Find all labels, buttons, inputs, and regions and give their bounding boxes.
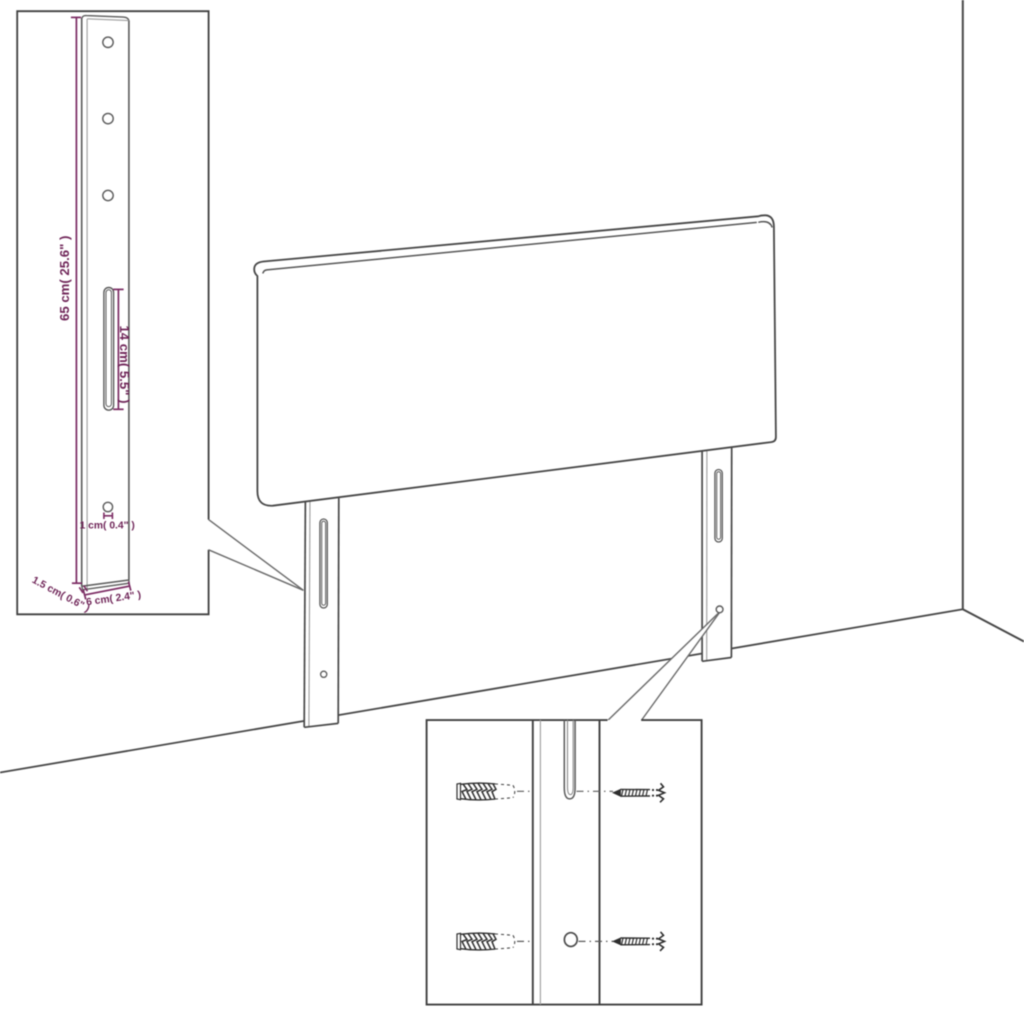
svg-text:14 cm( 5.5" ): 14 cm( 5.5" ) <box>117 325 132 403</box>
svg-text:65 cm( 25.6" ): 65 cm( 25.6" ) <box>57 236 72 321</box>
svg-text:1 cm( 0.4" ): 1 cm( 0.4" ) <box>80 521 135 532</box>
